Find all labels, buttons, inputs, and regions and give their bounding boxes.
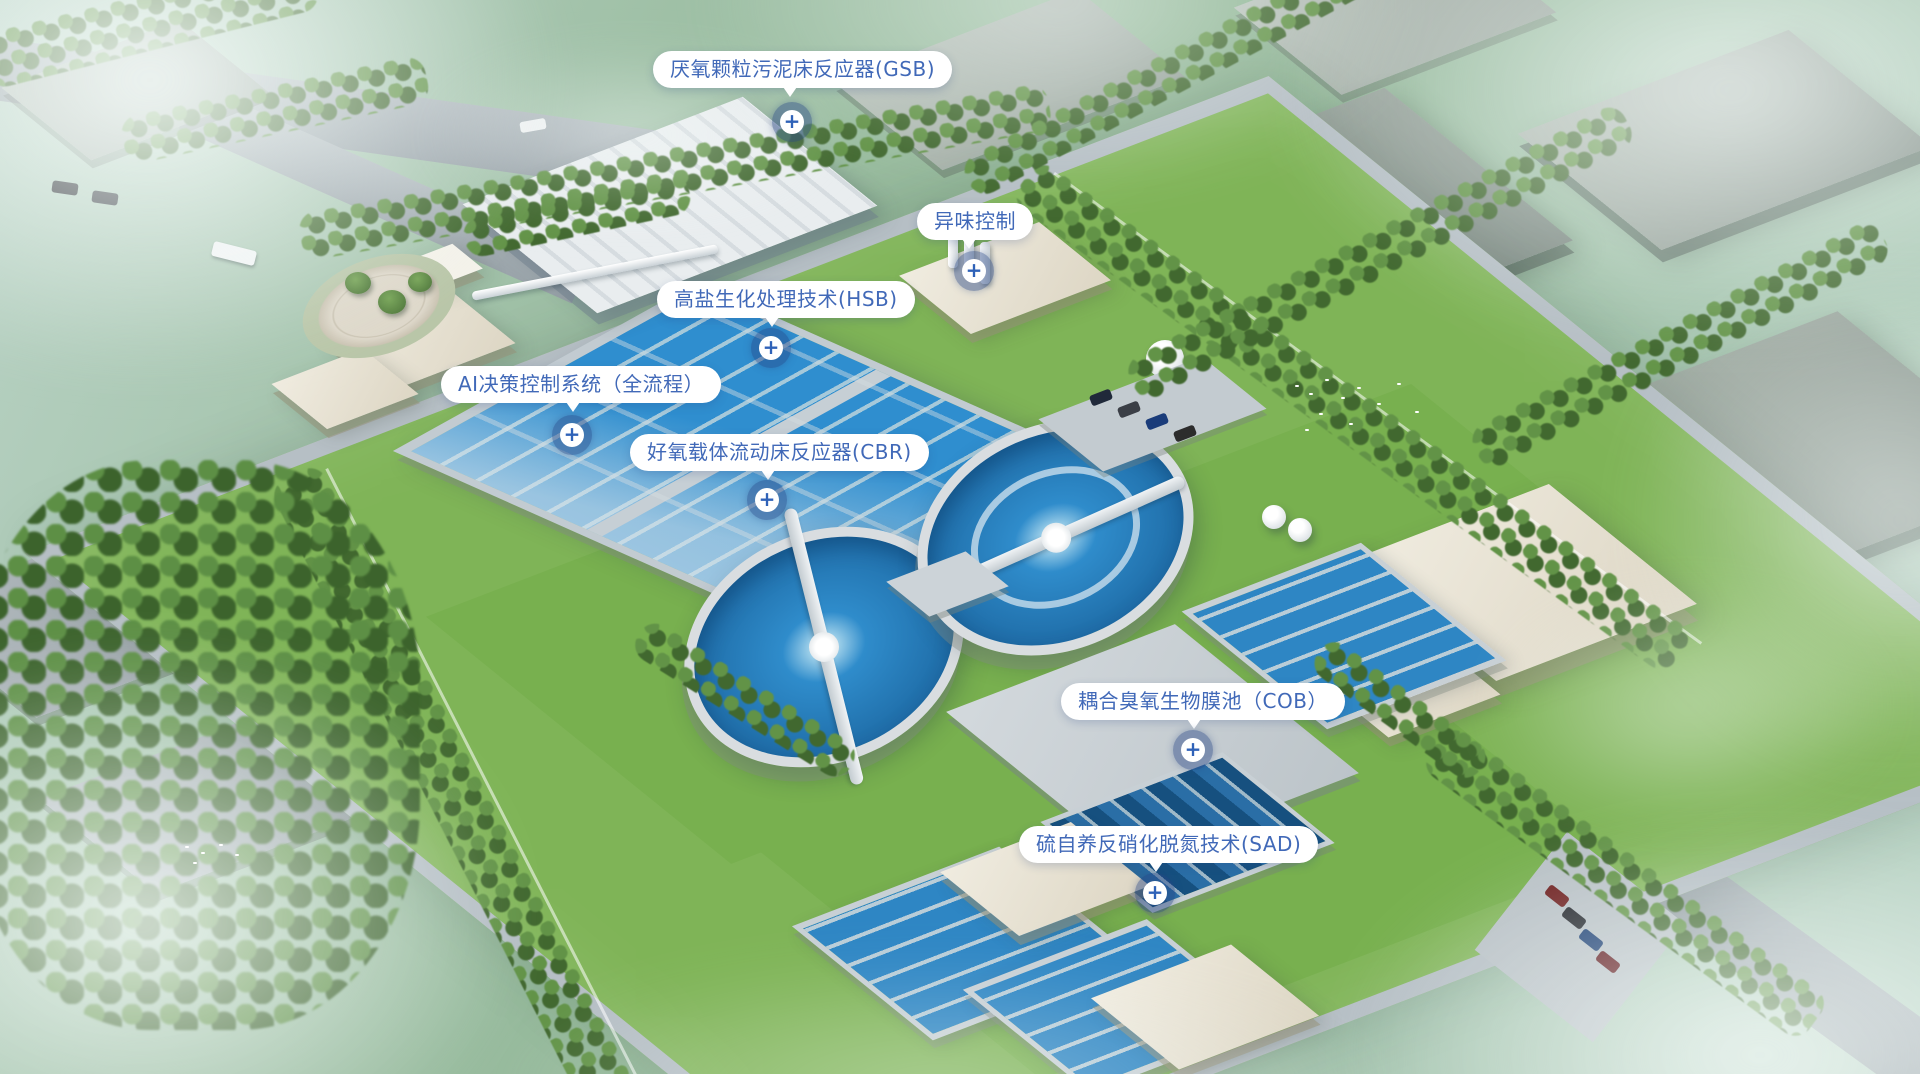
callout-cbr-label[interactable]: 好氧载体流动床反应器(CBR)	[630, 434, 929, 471]
callout-gsb[interactable]: 厌氧颗粒污泥床反应器(GSB)	[653, 51, 952, 88]
plus-icon-glyph: +	[560, 423, 584, 447]
fog-wisp-east	[1480, 580, 1900, 830]
plus-icon-glyph: +	[962, 259, 986, 283]
callout-sad[interactable]: 硫自养反硝化脱氮技术(SAD)	[1019, 826, 1318, 863]
callout-odor[interactable]: 异味控制	[917, 203, 1033, 240]
small-silo	[1288, 518, 1312, 542]
plus-icon[interactable]: +	[747, 480, 787, 520]
callout-cob[interactable]: 耦合臭氧生物膜池（COB）	[1061, 683, 1345, 720]
plus-icon-glyph: +	[1181, 738, 1205, 762]
plus-icon[interactable]: +	[954, 251, 994, 291]
plus-icon[interactable]: +	[1173, 730, 1213, 770]
plus-icon-glyph: +	[759, 336, 783, 360]
plus-icon[interactable]: +	[552, 415, 592, 455]
plus-icon-glyph: +	[780, 110, 804, 134]
birds-flock-east	[1295, 385, 1299, 387]
callout-ai[interactable]: AI决策控制系统（全流程）	[441, 366, 721, 403]
callout-cbr[interactable]: 好氧载体流动床反应器(CBR)	[630, 434, 929, 471]
aerial-plant-rendering: 厌氧颗粒污泥床反应器(GSB) + 异味控制 + 高盐生化处理技术(HSB) +…	[0, 0, 1920, 1074]
plus-icon-glyph: +	[1143, 881, 1167, 905]
plus-icon[interactable]: +	[772, 102, 812, 142]
plus-icon[interactable]: +	[751, 328, 791, 368]
callout-odor-label[interactable]: 异味控制	[917, 203, 1033, 240]
birds-flock-southwest	[185, 846, 189, 848]
callout-hsb[interactable]: 高盐生化处理技术(HSB)	[657, 281, 915, 318]
callout-sad-label[interactable]: 硫自养反硝化脱氮技术(SAD)	[1019, 826, 1318, 863]
callout-cob-label[interactable]: 耦合臭氧生物膜池（COB）	[1061, 683, 1345, 720]
plus-icon-glyph: +	[755, 488, 779, 512]
callout-ai-label[interactable]: AI决策控制系统（全流程）	[441, 366, 721, 403]
clarifier-hub	[804, 627, 844, 667]
small-silo	[1262, 505, 1286, 529]
callout-hsb-label[interactable]: 高盐生化处理技术(HSB)	[657, 281, 915, 318]
callout-gsb-label[interactable]: 厌氧颗粒污泥床反应器(GSB)	[653, 51, 952, 88]
plus-icon[interactable]: +	[1135, 873, 1175, 913]
